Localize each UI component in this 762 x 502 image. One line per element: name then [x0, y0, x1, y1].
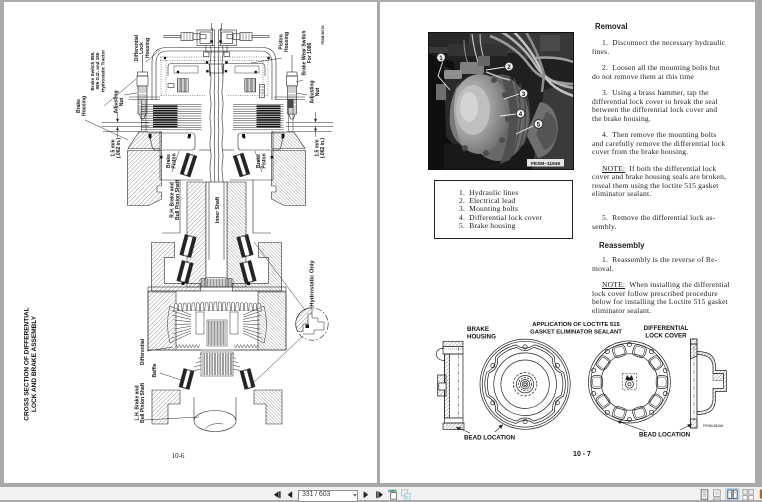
svg-text:GASKET ELIMINATOR SEALANT: GASKET ELIMINATOR SEALANT — [530, 330, 622, 336]
svg-text:10-6: 10-6 — [172, 452, 185, 460]
svg-text:Inner Shaft: Inner Shaft — [215, 197, 221, 223]
svg-text:2: 2 — [507, 64, 511, 71]
svg-text:Housing: Housing — [82, 96, 88, 116]
svg-text:BEAD LOCATION: BEAD LOCATION — [464, 435, 516, 442]
svg-text:BEAD LOCATION: BEAD LOCATION — [639, 432, 691, 439]
svg-text:Piston: Piston — [262, 153, 268, 168]
svg-text:Piston: Piston — [172, 153, 178, 168]
svg-text:Bull Pinion Shaft: Bull Pinion Shaft — [140, 383, 146, 423]
svg-text:4: 4 — [519, 111, 523, 118]
svg-text:Hydrostatic Only: Hydrostatic Only — [310, 260, 316, 307]
svg-text:LOCK COVER: LOCK COVER — [645, 333, 687, 340]
svg-text:Bull Pinion Shaft: Bull Pinion Shaft — [175, 180, 181, 220]
svg-text:Housing: Housing — [284, 32, 290, 52]
svg-text:Differential: Differential — [140, 338, 146, 365]
svg-text:FESM-9871B: FESM-9871B — [321, 25, 325, 45]
svg-text:LOCK AND BRAKE ASSEMBLY: LOCK AND BRAKE ASSEMBLY — [31, 315, 38, 412]
svg-text:1: 1 — [439, 55, 443, 62]
svg-text:For 1086: For 1086 — [307, 43, 313, 64]
svg-text:APPLICATION OF LOCTITE 515: APPLICATION OF LOCTITE 515 — [532, 322, 620, 328]
svg-text:Nut: Nut — [315, 88, 321, 97]
svg-text:10 - 7: 10 - 7 — [573, 451, 591, 458]
svg-text:3: 3 — [522, 91, 526, 98]
svg-text:FESM-9826A: FESM-9826A — [703, 424, 724, 428]
svg-text:FESM–11949: FESM–11949 — [531, 161, 560, 167]
svg-text:(.062 in.): (.062 in.) — [320, 138, 326, 159]
svg-text:(.062 in.): (.062 in.) — [116, 138, 122, 159]
svg-text:Hydrostatic Tractor: Hydrostatic Tractor — [100, 50, 105, 92]
svg-text:Nut: Nut — [119, 98, 125, 107]
svg-text:BRAKE: BRAKE — [467, 326, 489, 333]
svg-text:Baffle: Baffle — [152, 363, 158, 377]
svg-text:HOUSING: HOUSING — [467, 334, 496, 341]
svg-text:CROSS SECTION OF DIFFERENTIAL: CROSS SECTION OF DIFFERENTIAL — [23, 307, 30, 420]
svg-text:DIFFERENTIAL: DIFFERENTIAL — [644, 325, 689, 332]
svg-text:Housing: Housing — [145, 38, 151, 58]
svg-text:5: 5 — [537, 121, 541, 128]
